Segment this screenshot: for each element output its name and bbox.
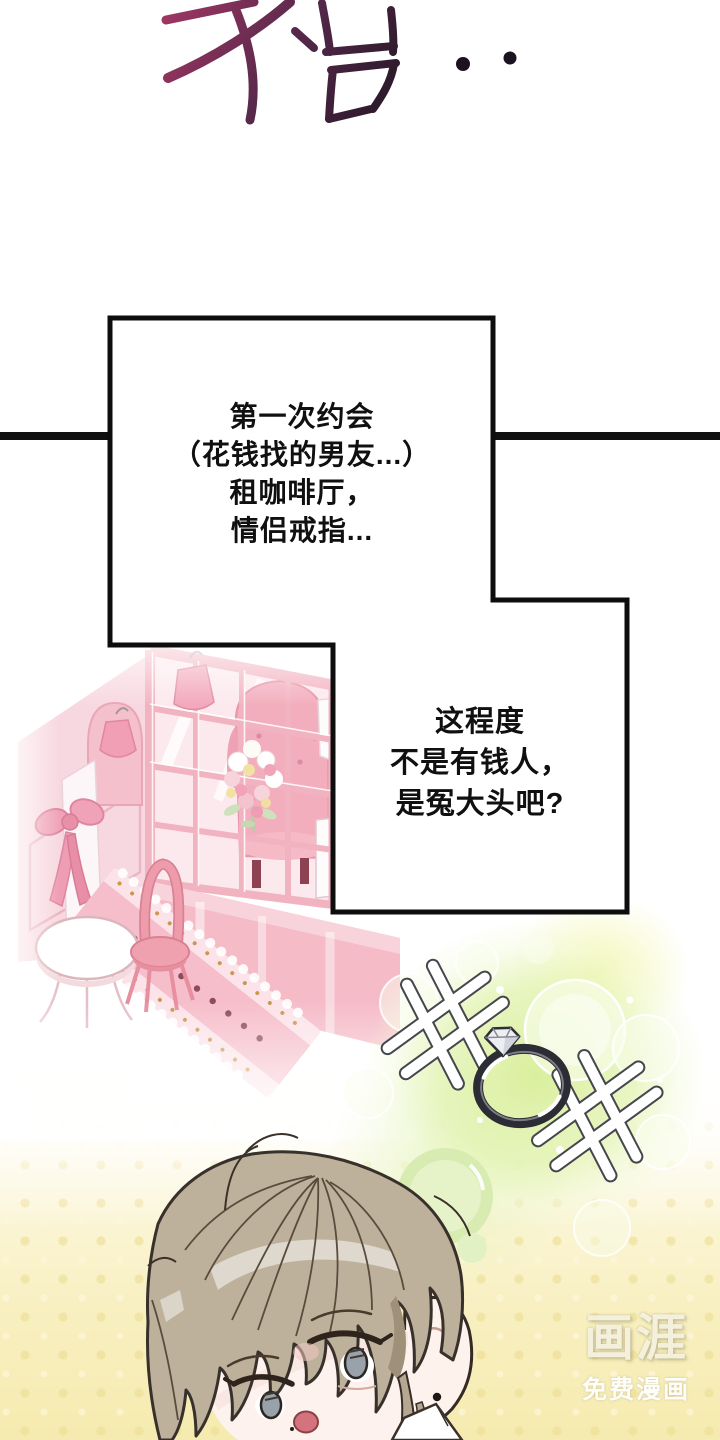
narration-text-1: 第一次约会 （花钱找的男友...） 租咖啡厅， 情侣戒指...: [112, 398, 492, 550]
nose-blush: [293, 1343, 319, 1361]
sfx-dot-2: [504, 52, 517, 65]
narration-text-2: 这程度 不是有钱人， 是冤大头吧?: [335, 702, 625, 825]
comic-page: 수습..: [0, 0, 720, 1440]
sfx-dot-1: [456, 57, 470, 71]
sfx-calligraphy: [0, 0, 720, 200]
beauty-mark: [290, 1427, 294, 1431]
character-head: [110, 1120, 510, 1440]
earring: [433, 1393, 441, 1401]
mouth: [294, 1412, 318, 1433]
